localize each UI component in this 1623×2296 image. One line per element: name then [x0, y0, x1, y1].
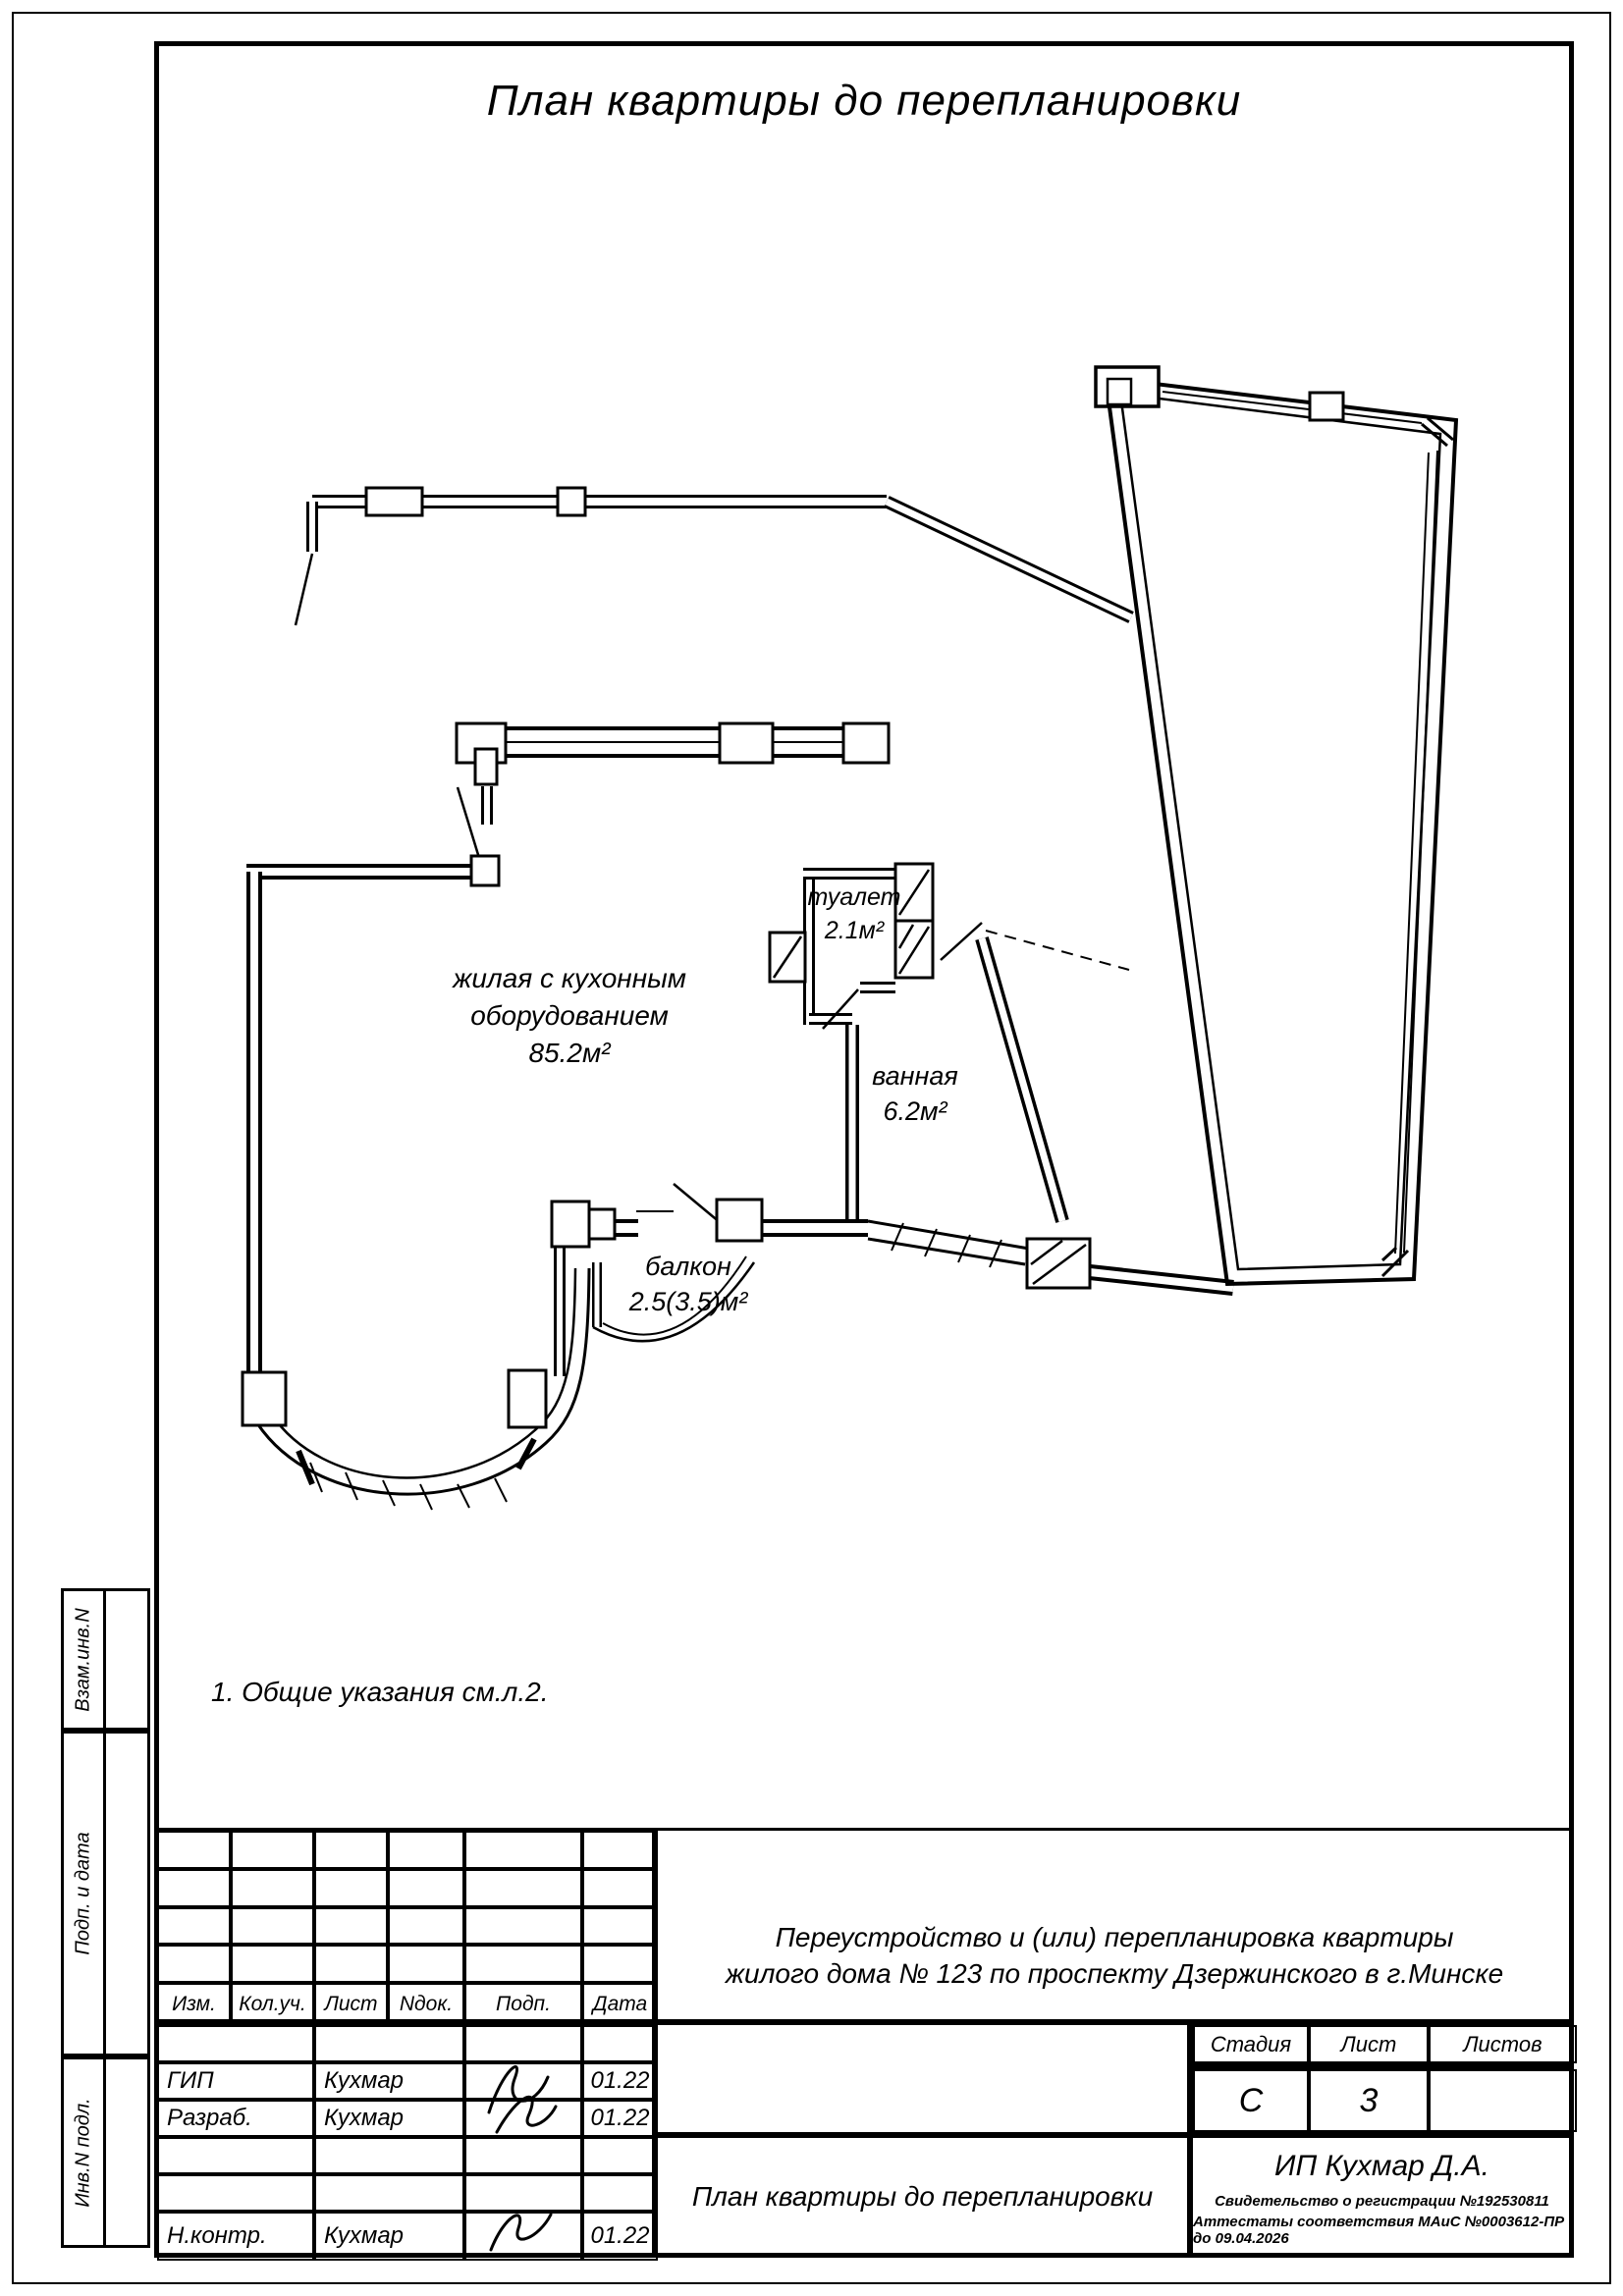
- room-label-balcony: балкон 2.5(3.5)м²: [585, 1249, 791, 1320]
- row-razrab-name: Кухмар: [314, 2100, 464, 2137]
- col-izm: Изм.: [157, 1983, 231, 2025]
- project-description-line1: Переустройство и (или) перепланировка кв…: [776, 1920, 1454, 1955]
- project-description-line2: жилого дома № 123 по проспекту Дзержинск…: [726, 1956, 1503, 1992]
- project-description-cell: Переустройство и (или) перепланировка кв…: [655, 1828, 1574, 2022]
- sheet-value: 3: [1309, 2069, 1429, 2132]
- titleblock-change-grid: Изм. Кол.уч. Лист Nдок. Подп. Дата: [154, 1828, 655, 2022]
- row-nkontr-sign: [464, 2212, 582, 2261]
- general-note: 1. Общие указания см.л.2.: [211, 1677, 702, 1708]
- margin-box-podp: Подп. и дата: [61, 1731, 150, 2056]
- margin-label-inv: Инв.N подл.: [73, 2098, 95, 2207]
- row-nkontr-name: Кухмар: [314, 2212, 464, 2261]
- col-koluch: Кол.уч.: [231, 1983, 314, 2025]
- row-gip-name: Кухмар: [314, 2062, 464, 2100]
- margin-box-vzam-label-cell: Взам.инв.N: [64, 1591, 106, 1728]
- col-podp: Подп.: [464, 1983, 582, 2025]
- stage-value-row: С 3: [1190, 2066, 1574, 2135]
- col-data: Дата: [582, 1983, 658, 2025]
- margin-box-podp-label-cell: Подп. и дата: [64, 1734, 106, 2054]
- room-living-area: 85.2м²: [528, 1038, 610, 1068]
- room-toilet-area: 2.1м²: [825, 917, 884, 944]
- room-balcony-area: 2.5(3.5)м²: [629, 1287, 748, 1316]
- col-ndok: Nдок.: [388, 1983, 464, 2025]
- row-razrab-role: Разраб.: [157, 2100, 314, 2137]
- room-label-toilet: туалет 2.1м²: [766, 881, 943, 948]
- room-living-line1: жилая с кухонным: [453, 963, 686, 993]
- company-cert1: Свидетельство о регистрации №192530811: [1215, 2193, 1549, 2210]
- stage-header-row: Стадия Лист Листов: [1190, 2022, 1574, 2066]
- drawing-title-cell: План квартиры до перепланировки: [655, 2135, 1190, 2258]
- row-nkontr-role: Н.контр.: [157, 2212, 314, 2261]
- company-name: ИП Кухмар Д.А.: [1274, 2150, 1489, 2183]
- margin-label-podp: Подп. и дата: [73, 1832, 95, 1954]
- margin-box-inv-label-cell: Инв.N подл.: [64, 2059, 106, 2245]
- room-bath-area: 6.2м²: [883, 1096, 947, 1126]
- room-label-living: жилая с кухонным оборудованием 85.2м²: [363, 960, 776, 1071]
- sheets-value: [1429, 2069, 1577, 2132]
- drawing-sheet: План квартиры до перепланировки: [0, 0, 1623, 2296]
- row-gip-sign: [464, 2062, 582, 2100]
- room-toilet-name: туалет: [808, 883, 901, 911]
- room-label-bath: ванная 6.2м²: [807, 1058, 1023, 1130]
- margin-box-vzam: Взам.инв.N: [61, 1588, 150, 1731]
- margin-label-vzam: Взам.инв.N: [73, 1608, 95, 1711]
- company-cert2: Аттестаты соответствия МАиС №0003612-ПР …: [1193, 2214, 1571, 2247]
- col-list: Лист: [314, 1983, 388, 2025]
- stage-label: Стадия: [1193, 2025, 1309, 2063]
- company-cell: ИП Кухмар Д.А. Свидетельство о регистрац…: [1190, 2135, 1574, 2258]
- stage-value: С: [1193, 2069, 1309, 2132]
- margin-box-inv: Инв.N подл.: [61, 2056, 150, 2248]
- sheet-label: Лист: [1309, 2025, 1429, 2063]
- room-balcony-name: балкон: [645, 1252, 731, 1281]
- room-living-line2: оборудованием: [470, 1000, 669, 1031]
- sheets-label: Листов: [1429, 2025, 1577, 2063]
- empty-cell: [655, 2022, 1190, 2135]
- row-gip-date: 01.22: [582, 2062, 658, 2100]
- row-gip-role: ГИП: [157, 2062, 314, 2100]
- row-nkontr-date: 01.22: [582, 2212, 658, 2261]
- titleblock-signature-rows: ГИП Кухмар 01.22 Разраб. Кухмар 01.22 Н.…: [154, 2022, 655, 2258]
- row-razrab-date: 01.22: [582, 2100, 658, 2137]
- row-razrab-sign: [464, 2100, 582, 2137]
- room-bath-name: ванная: [872, 1061, 958, 1091]
